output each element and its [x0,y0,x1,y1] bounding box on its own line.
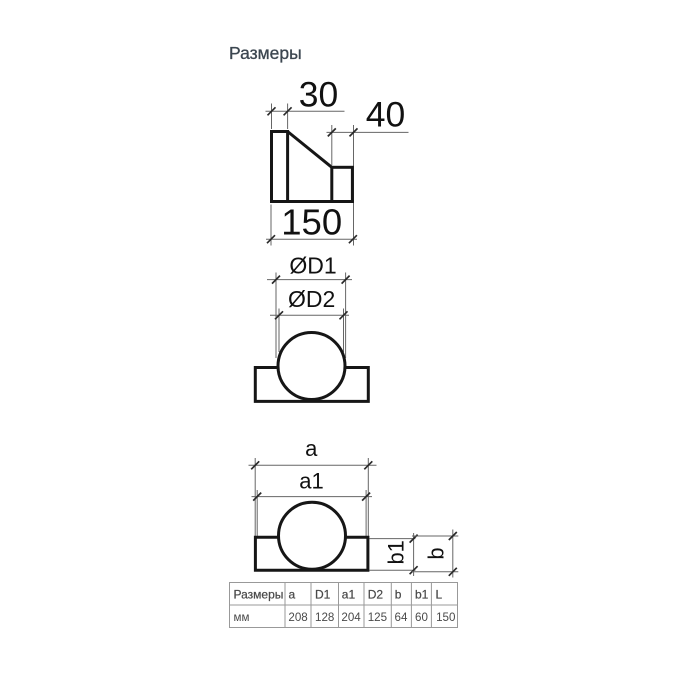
svg-text:D1: D1 [315,588,331,602]
svg-text:125: 125 [368,611,387,624]
svg-text:150: 150 [281,202,342,243]
svg-text:ØD1: ØD1 [289,252,336,278]
svg-text:b: b [424,547,449,559]
svg-text:a1: a1 [299,469,323,494]
svg-text:30: 30 [299,74,339,114]
svg-text:ØD2: ØD2 [288,286,335,312]
svg-text:128: 128 [315,611,334,624]
svg-text:b1: b1 [415,588,429,602]
svg-text:64: 64 [395,611,408,624]
svg-text:60: 60 [415,611,428,624]
svg-text:a: a [305,436,318,461]
svg-text:L: L [436,588,443,602]
svg-text:204: 204 [341,611,361,624]
svg-text:мм: мм [234,611,250,624]
svg-text:Размеры: Размеры [229,43,302,63]
svg-text:D2: D2 [368,588,384,602]
svg-text:208: 208 [288,611,307,624]
svg-text:150: 150 [436,611,455,624]
svg-text:Размеры: Размеры [234,588,284,602]
svg-text:a1: a1 [342,588,356,602]
svg-text:40: 40 [366,94,406,134]
svg-text:a: a [289,588,296,602]
svg-text:b: b [395,588,402,602]
svg-text:b1: b1 [384,540,409,564]
